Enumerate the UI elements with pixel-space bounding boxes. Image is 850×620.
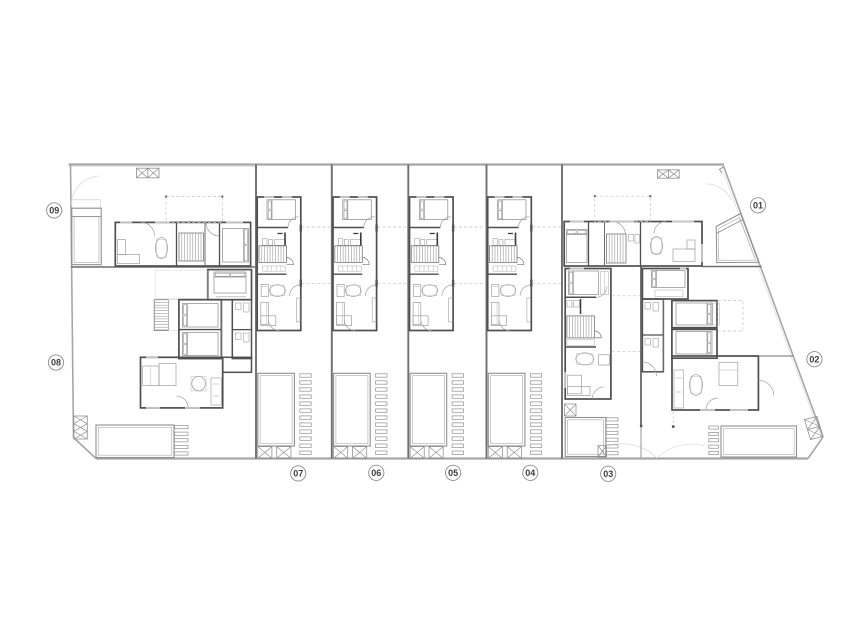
svg-text:03: 03: [603, 469, 613, 479]
svg-text:04: 04: [525, 468, 535, 478]
svg-text:09: 09: [49, 206, 59, 216]
svg-text:01: 01: [753, 201, 763, 211]
svg-text:02: 02: [809, 354, 819, 364]
svg-text:08: 08: [51, 358, 61, 368]
svg-text:06: 06: [371, 468, 381, 478]
svg-text:07: 07: [293, 469, 303, 479]
svg-text:05: 05: [448, 468, 458, 478]
